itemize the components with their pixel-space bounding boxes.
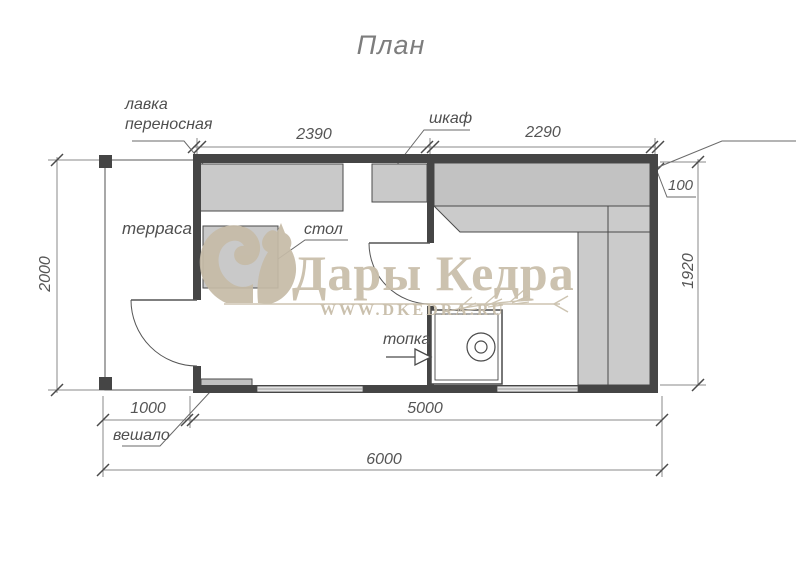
- terrace-outline: [99, 155, 193, 390]
- dim-house-width: 5000: [395, 400, 455, 418]
- dim-room2-width: 2290: [513, 124, 573, 142]
- dim-terrace-width: 1000: [118, 400, 178, 418]
- label-terrace: терраса: [122, 219, 192, 239]
- terrace-post-top: [99, 155, 112, 168]
- watermark-site-url: WWW.DKEDRA.RU: [320, 302, 506, 320]
- wall-interior-upper: [427, 154, 434, 243]
- terrace-post-bottom: [99, 377, 112, 390]
- firebox-arrow-icon: [386, 349, 431, 365]
- dim-inner-depth: 1920: [680, 241, 698, 301]
- label-hanger: вешало: [113, 426, 170, 446]
- label-table: стол: [304, 220, 343, 240]
- squirrel-logo-icon: [200, 223, 296, 304]
- watermark-brand: Дары Кедра: [292, 244, 575, 302]
- sauna-bench-mid: [434, 206, 650, 232]
- terrace-door-arc: [131, 300, 197, 366]
- portable-bench: [200, 164, 343, 211]
- dim-room1-width: 2390: [284, 126, 344, 144]
- stove: [431, 310, 502, 384]
- terrace-door: [131, 300, 197, 366]
- sauna-bench-top: [434, 163, 650, 206]
- sauna-bench-side: [578, 232, 650, 385]
- drawing-title: План: [336, 30, 446, 61]
- label-portable-bench-line1: лавка: [125, 95, 212, 115]
- hanger-shelf: [201, 379, 252, 386]
- wall-left-upper: [193, 154, 201, 300]
- dim-terrace-depth: 2000: [37, 244, 55, 304]
- label-firebox: топка: [383, 330, 430, 350]
- dim-total-width: 6000: [354, 451, 414, 469]
- dim-wall-thickness: 100: [668, 177, 693, 194]
- label-cabinet: шкаф: [429, 109, 472, 129]
- cabinet-shkaf: [372, 164, 427, 202]
- floor-plan-canvas: План лавка переносная шкаф терраса стол …: [0, 0, 800, 565]
- wall-right: [650, 154, 658, 393]
- label-portable-bench-line2: переносная: [125, 115, 212, 135]
- label-portable-bench: лавка переносная: [125, 95, 212, 135]
- wall-top: [193, 154, 658, 163]
